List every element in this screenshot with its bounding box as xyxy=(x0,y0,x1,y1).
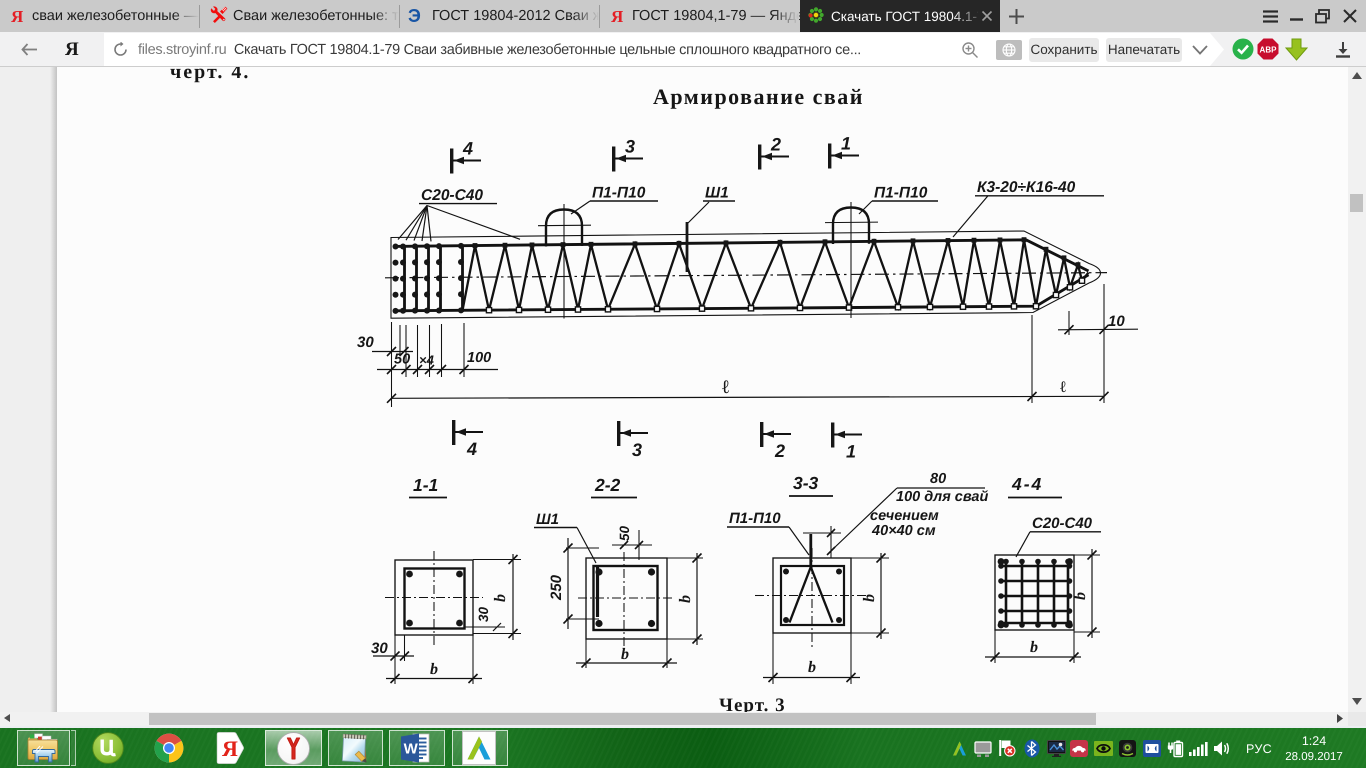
svg-text:ℓ: ℓ xyxy=(722,377,729,398)
svg-text:80: 80 xyxy=(930,471,946,487)
svg-text:30: 30 xyxy=(476,606,491,622)
svg-text:50: 50 xyxy=(617,525,632,541)
svg-text:С20-С40: С20-С40 xyxy=(1032,515,1093,532)
svg-text:b: b xyxy=(1030,639,1038,656)
svg-text:30: 30 xyxy=(371,640,388,657)
svg-text:b: b xyxy=(621,646,629,663)
svg-text:С20-С40: С20-С40 xyxy=(421,187,483,204)
svg-text:Армирование свай: Армирование свай xyxy=(653,84,864,109)
svg-text:3: 3 xyxy=(632,440,642,460)
svg-text:К3-20÷К16-40: К3-20÷К16-40 xyxy=(977,179,1076,196)
svg-text:40×40 см: 40×40 см xyxy=(871,523,936,539)
svg-text:1-1: 1-1 xyxy=(413,475,438,495)
svg-text:W: W xyxy=(404,741,419,758)
svg-text:100: 100 xyxy=(467,350,491,366)
svg-text:Я: Я xyxy=(611,8,623,24)
svg-text:10: 10 xyxy=(1108,313,1125,330)
svg-text:250: 250 xyxy=(548,574,565,601)
svg-text:Э: Э xyxy=(408,7,421,25)
svg-text:4-4: 4-4 xyxy=(1011,474,1043,494)
svg-text:b: b xyxy=(430,661,438,678)
svg-text:100 для свай: 100 для свай xyxy=(896,489,988,505)
svg-text:ABP: ABP xyxy=(1260,46,1278,55)
svg-text:b: b xyxy=(808,659,816,676)
svg-text:2-2: 2-2 xyxy=(594,475,621,495)
svg-text:1: 1 xyxy=(846,442,856,462)
svg-text:2: 2 xyxy=(774,441,785,461)
svg-text:Я: Я xyxy=(11,8,23,24)
svg-text:1: 1 xyxy=(841,134,851,154)
svg-text:П1-П10: П1-П10 xyxy=(729,510,781,527)
svg-text:30: 30 xyxy=(357,334,374,351)
svg-text:П1-П10: П1-П10 xyxy=(592,185,646,202)
svg-text:Черт. 3: Черт. 3 xyxy=(719,695,786,712)
svg-text:сечением: сечением xyxy=(870,508,939,524)
svg-text:Ш1: Ш1 xyxy=(536,511,559,528)
svg-text:50: 50 xyxy=(394,352,410,368)
svg-text:ℓ: ℓ xyxy=(1060,379,1066,396)
svg-text:2: 2 xyxy=(770,135,781,155)
svg-text:b: b xyxy=(861,594,878,602)
svg-text:4: 4 xyxy=(466,439,477,459)
svg-text:b: b xyxy=(1072,592,1089,600)
svg-text:Я: Я xyxy=(222,736,238,761)
svg-text:b: b xyxy=(677,595,694,603)
svg-text:П1-П10: П1-П10 xyxy=(874,185,928,202)
svg-text:черт. 4.: черт. 4. xyxy=(170,67,250,83)
svg-text:Ш1: Ш1 xyxy=(705,185,729,202)
svg-text:3-3: 3-3 xyxy=(793,473,819,493)
svg-text:4: 4 xyxy=(462,139,473,159)
svg-text:3: 3 xyxy=(625,137,635,157)
svg-text:b: b xyxy=(492,594,509,602)
